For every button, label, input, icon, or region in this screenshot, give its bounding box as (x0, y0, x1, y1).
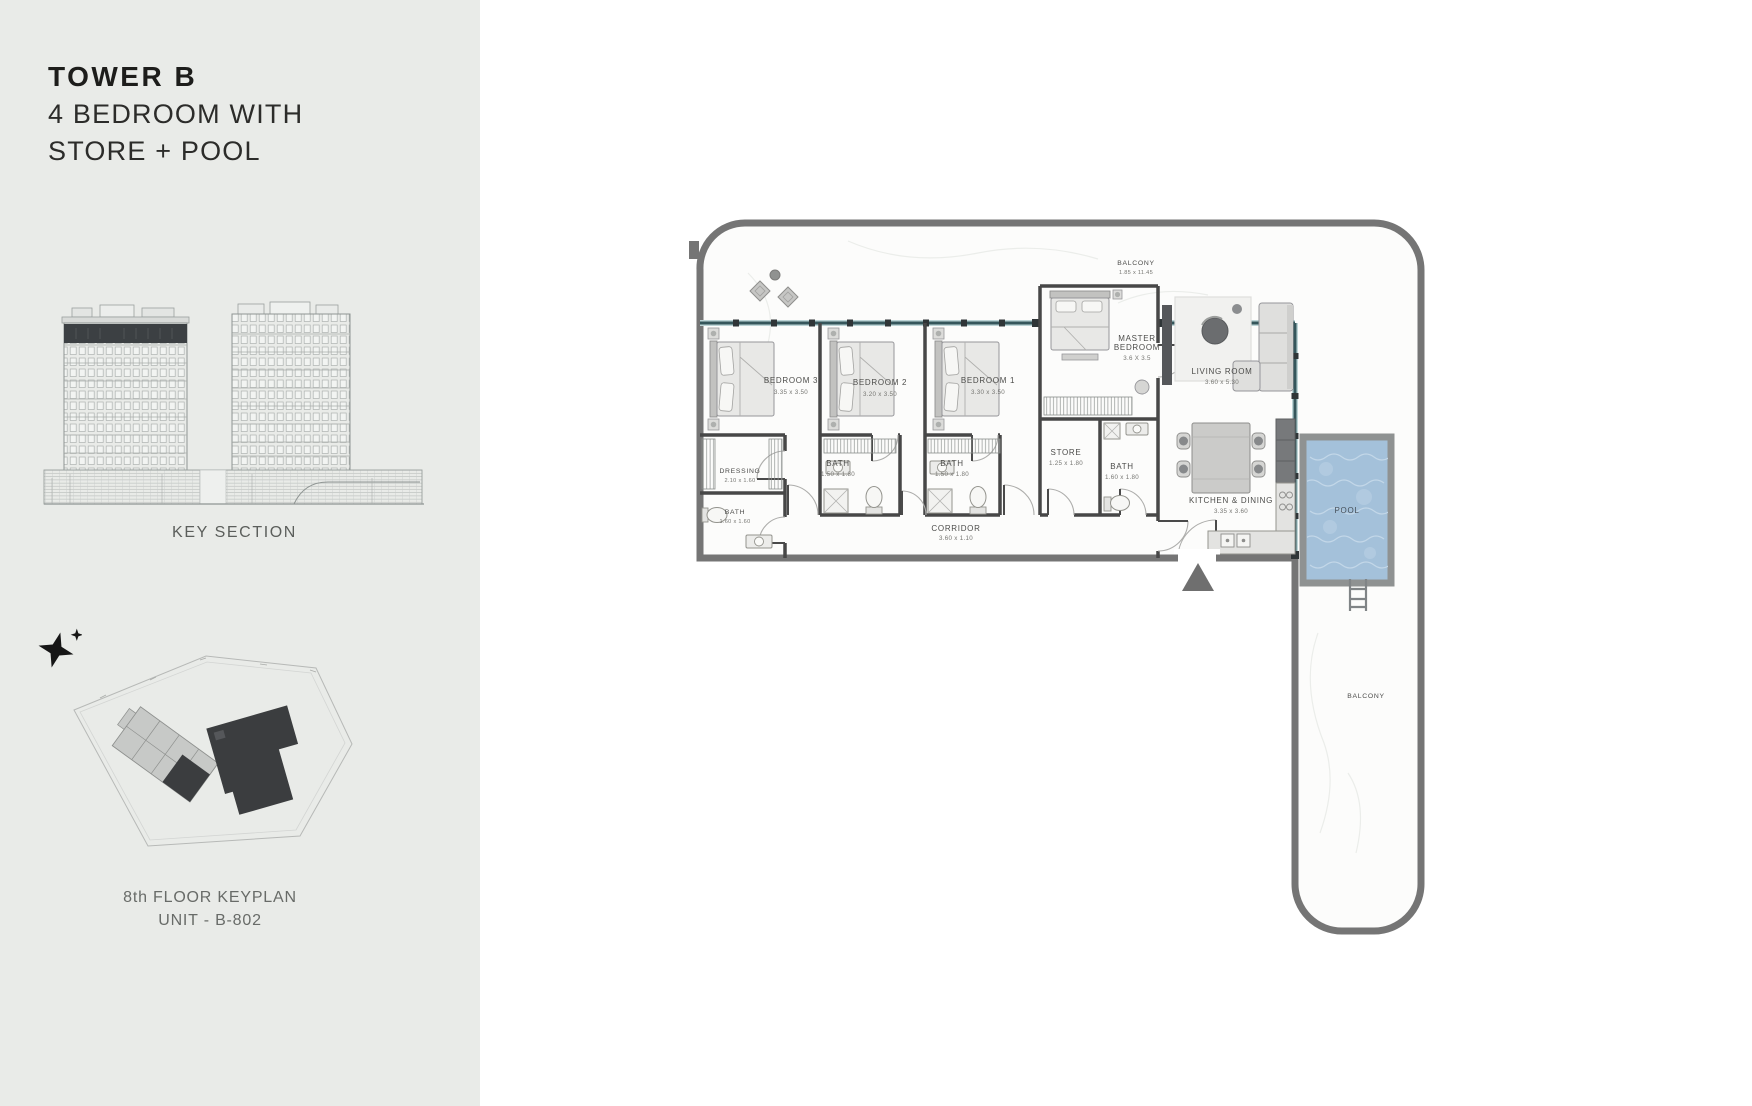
master-armchair (1135, 380, 1149, 394)
keyplan-caption-line2: UNIT - B-802 (55, 909, 365, 932)
keyplan-tower-a-footprint (106, 702, 218, 802)
room-label-pool: POOL (1334, 506, 1359, 515)
page-title-tower: TOWER B (48, 58, 448, 96)
room-dims-bedroom3: 3.35 x 3.50 (774, 389, 808, 396)
keyplan-caption-line1: 8th FLOOR KEYPLAN (55, 886, 365, 909)
page-title: TOWER B 4 BEDROOM WITH STORE + POOL (48, 58, 448, 170)
room-label-bedroom3: BEDROOM 3 (764, 376, 818, 385)
room-dims-kitchen-dining: 3.35 x 3.60 (1214, 508, 1248, 515)
room-dims-bath-dressing: 1.60 x 1.60 (720, 519, 751, 525)
room-dims-bath-bedroom2: 1.50 x 1.80 (821, 471, 855, 478)
room-label-master-line1: MASTER (1118, 334, 1156, 343)
room-label-bath-bedroom1: BATH (940, 459, 964, 468)
key-section-left-tower (62, 305, 189, 470)
key-section-highlighted-floor (64, 324, 187, 343)
room-dims-bedroom2: 3.20 x 3.50 (863, 391, 897, 398)
page-title-unit-type-line2: STORE + POOL (48, 133, 448, 170)
entrance (1174, 549, 1220, 591)
room-label-corridor: CORRIDOR (931, 524, 980, 533)
wall-stub (689, 241, 699, 259)
keyplan-caption: 8th FLOOR KEYPLAN UNIT - B-802 (55, 886, 365, 932)
room-dims-balcony-top: 1.85 x 11.45 (1119, 270, 1153, 276)
room-dims-master: 3.6 X 3.5 (1123, 355, 1151, 362)
room-label-dressing: DRESSING (719, 468, 760, 475)
room-label-balcony-top: BALCONY (1117, 260, 1154, 267)
key-section-podium (44, 470, 424, 504)
room-dims-living-room: 3.60 x 5.30 (1205, 379, 1239, 386)
room-label-bedroom2: BEDROOM 2 (853, 378, 907, 387)
room-label-balcony-right: BALCONY (1347, 693, 1384, 700)
room-label-kitchen-dining: KITCHEN & DINING (1189, 496, 1273, 505)
room-dims-bath-bedroom1: 1.50 x 1.80 (935, 471, 969, 478)
pool (1303, 437, 1391, 611)
room-dims-dressing: 2.10 x 1.60 (725, 478, 756, 484)
keyplan-figure (60, 648, 370, 876)
entrance-arrow-icon (1182, 563, 1214, 591)
room-label-bath-dressing: BATH (725, 509, 745, 516)
key-section-figure (42, 290, 427, 518)
room-label-bedroom1: BEDROOM 1 (961, 376, 1015, 385)
page-title-unit-type-line1: 4 BEDROOM WITH (48, 96, 448, 133)
room-dims-store: 1.25 x 1.80 (1049, 460, 1083, 467)
living-room-furniture (1162, 297, 1293, 391)
room-dims-corridor: 3.60 x 1.10 (939, 535, 973, 542)
side-panel: TOWER B 4 BEDROOM WITH STORE + POOL (0, 0, 480, 1106)
room-label-store: STORE (1051, 448, 1082, 457)
room-label-bath-master: BATH (1110, 462, 1134, 471)
room-dims-bath-master: 1.60 x 1.80 (1105, 474, 1139, 481)
key-section-caption: KEY SECTION (42, 524, 427, 542)
room-label-living-room: LIVING ROOM (1191, 367, 1252, 376)
key-section-right-tower (232, 302, 350, 470)
master-wardrobe (1044, 397, 1132, 415)
room-label-bath-bedroom2: BATH (826, 459, 850, 468)
room-label-master-line2: BEDROOM (1114, 343, 1160, 352)
room-dims-bedroom1: 3.30 x 3.50 (971, 389, 1005, 396)
keyplan-tower-b-footprint (206, 705, 312, 817)
floorplan-figure: BALCONY 1.85 x 11.45 BEDROOM 3 3.35 x 3.… (688, 213, 1428, 948)
floorplan-page: { "sidebar": { "title_line1": "TOWER B",… (0, 0, 1752, 1106)
